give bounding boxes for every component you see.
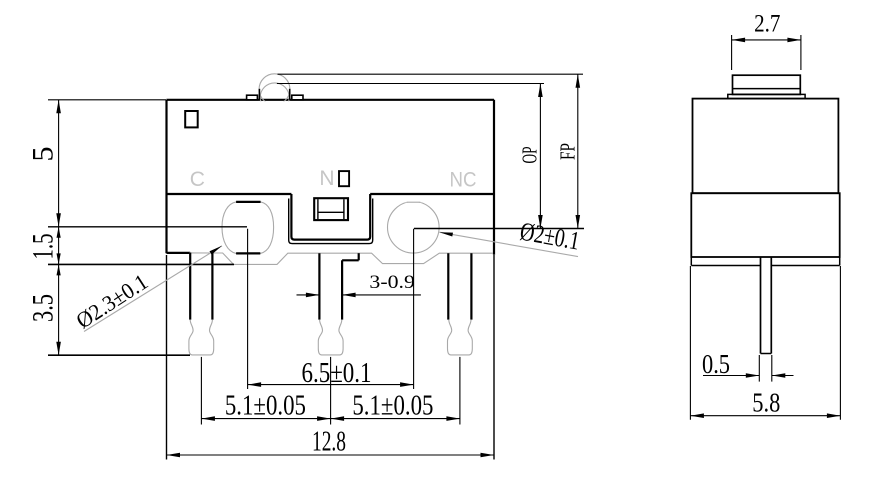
svg-text:2.7: 2.7 [754,11,780,38]
svg-text:FP: FP [556,143,580,160]
svg-text:5.8: 5.8 [752,388,780,418]
svg-text:12.8: 12.8 [312,426,346,457]
svg-text:NC: NC [450,168,477,191]
svg-text:0.5: 0.5 [702,349,730,379]
svg-text:5.1±0.05: 5.1±0.05 [225,390,306,421]
svg-text:OP: OP [518,147,542,164]
svg-text:C: C [190,168,205,191]
svg-text:N: N [319,167,334,190]
svg-text:3-0.9: 3-0.9 [369,272,415,293]
svg-text:5.1±0.05: 5.1±0.05 [352,390,433,421]
svg-text:1.5: 1.5 [27,234,60,260]
svg-text:5: 5 [27,147,60,162]
svg-text:6.5±0.1: 6.5±0.1 [302,358,372,389]
svg-text:3.5: 3.5 [27,294,60,322]
